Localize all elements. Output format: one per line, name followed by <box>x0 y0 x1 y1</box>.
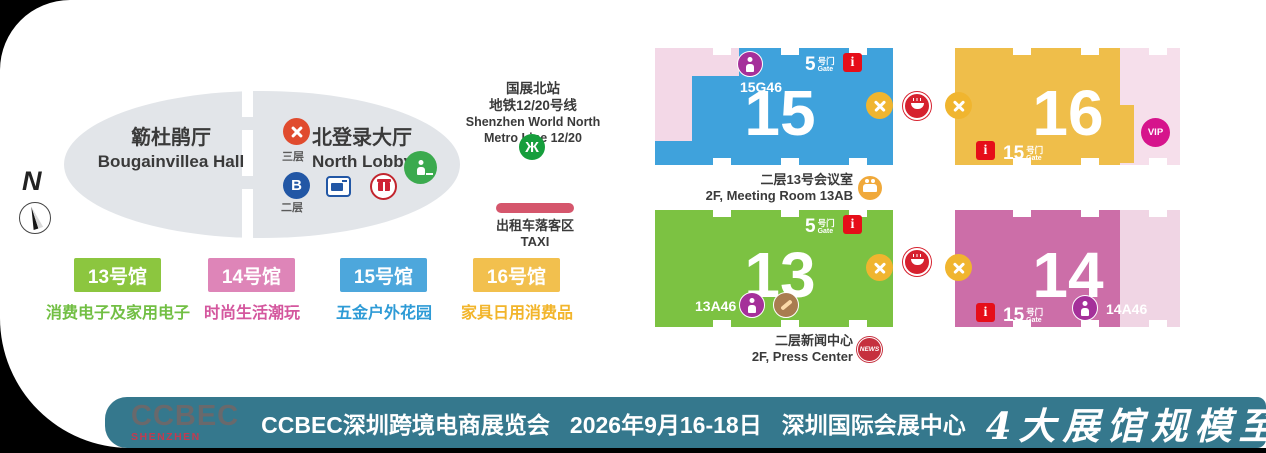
gift-shop-icon <box>370 173 397 200</box>
legend-desc-hall13: 消费电子及家用电子 <box>44 299 192 323</box>
ccbec-logo-text: CCBEC <box>131 402 239 431</box>
escalator-icon <box>773 292 799 318</box>
legend-chip-hall15: 15号馆 <box>340 258 427 292</box>
metro-station-en: Shenzhen World North <box>455 114 611 130</box>
info-icon: i <box>976 303 995 322</box>
press-center-note: 二层新闻中心 2F, Press Center <box>688 333 853 365</box>
dining-icon <box>866 254 893 281</box>
legend-desc-hall14: 时尚生活潮玩 <box>203 299 301 323</box>
metro-logo-icon: Ж <box>519 134 545 160</box>
b-floor-icon: B <box>283 172 310 199</box>
dining-icon <box>283 118 310 145</box>
bougainvillea-hall-zh: 簕杜鹃厅 <box>82 126 260 151</box>
ccbec-logo: CCBEC SHENZHEN <box>131 402 239 443</box>
hall-15-block: 15G46 15 5 号门Gate i <box>655 48 893 165</box>
floor-3-label: 三层 <box>282 148 304 164</box>
vip-icon: VIP <box>1141 118 1170 147</box>
metro-station-zh: 国展北站 <box>455 80 611 97</box>
event-slogan: 4大展馆规模至大 <box>986 396 1266 450</box>
compass-icon <box>19 202 51 234</box>
food-court-icon <box>903 92 931 120</box>
taxi-en: TAXI <box>455 234 615 250</box>
taxi-zone-bar <box>496 203 574 213</box>
meeting-room-zh: 二层13号会议室 <box>688 172 853 188</box>
legend-desc-hall15: 五金户外花园 <box>335 299 433 323</box>
venue-map-canvas: N 簕杜鹃厅 Bougainvillea Hall 北登录大厅 North Lo… <box>0 0 1266 453</box>
hall-16-number: 16 <box>1003 74 1133 152</box>
meeting-room-icon <box>858 176 882 200</box>
legend-desc-hall16: 家具日用消费品 <box>460 299 574 323</box>
press-center-zh: 二层新闻中心 <box>688 333 853 349</box>
booth-label-14a46: 14A46 <box>1106 301 1147 317</box>
event-name: CCBEC深圳跨境电商展览会 <box>261 412 550 438</box>
nursing-room-icon <box>739 292 765 318</box>
legend-chip-hall16: 16号馆 <box>473 258 560 292</box>
press-center-en: 2F, Press Center <box>688 349 853 365</box>
event-date: 2026年9月16-18日 <box>570 412 762 438</box>
booth-label-13a46: 13A46 <box>695 298 736 314</box>
registration-desk-icon <box>404 151 437 184</box>
taxi-label: 出租车落客区 TAXI <box>455 218 615 250</box>
ccbec-logo-subtext: SHENZHEN <box>131 432 239 443</box>
hall-13-block: 13 5 号门Gate i 13A46 <box>655 210 893 327</box>
event-banner: CCBEC SHENZHEN CCBEC深圳跨境电商展览会2026年9月16-1… <box>105 397 1266 448</box>
event-venue: 深圳国际会展中心 <box>782 412 966 438</box>
gate-15-label: 15 号门Gate <box>1003 305 1043 327</box>
hall-15-annex <box>655 48 692 141</box>
hall-15-number: 15 <box>715 74 845 152</box>
north-lobby-zh: 北登录大厅 <box>312 126 442 151</box>
gate-15-label: 15 号门Gate <box>1003 143 1043 165</box>
compass-needle-icon <box>26 205 45 232</box>
meeting-room-en: 2F, Meeting Room 13AB <box>688 188 853 204</box>
bougainvillea-hall-en: Bougainvillea Hall <box>82 151 260 172</box>
info-icon: i <box>976 141 995 160</box>
metro-line-zh: 地铁12/20号线 <box>455 97 611 114</box>
meeting-room-note: 二层13号会议室 2F, Meeting Room 13AB <box>688 172 853 204</box>
dining-icon <box>945 92 972 119</box>
nursing-room-icon <box>1072 295 1098 321</box>
dining-icon <box>945 254 972 281</box>
taxi-zh: 出租车落客区 <box>455 218 615 234</box>
info-icon: i <box>843 215 862 234</box>
legend-chip-hall13: 13号馆 <box>74 258 161 292</box>
hall-14-block: 14 i 15 号门Gate 14A46 <box>955 210 1180 327</box>
event-title: CCBEC深圳跨境电商展览会2026年9月16-18日深圳国际会展中心 <box>261 406 986 440</box>
gate-5-label: 5 号门Gate <box>805 54 835 76</box>
hall-16-block: 16 i 15 号门Gate VIP <box>955 48 1180 165</box>
ticket-machine-icon <box>326 176 351 197</box>
venue-connector <box>238 176 257 189</box>
news-press-icon: NEWS <box>857 337 882 362</box>
food-court-icon <box>903 248 931 276</box>
floor-2-label: 二层 <box>281 199 303 215</box>
dining-icon <box>866 92 893 119</box>
info-icon: i <box>843 53 862 72</box>
compass-north-label: N <box>22 166 42 197</box>
legend-chip-hall14: 14号馆 <box>208 258 295 292</box>
bougainvillea-hall-label: 簕杜鹃厅 Bougainvillea Hall <box>82 126 260 172</box>
gate-5-label: 5 号门Gate <box>805 216 835 238</box>
